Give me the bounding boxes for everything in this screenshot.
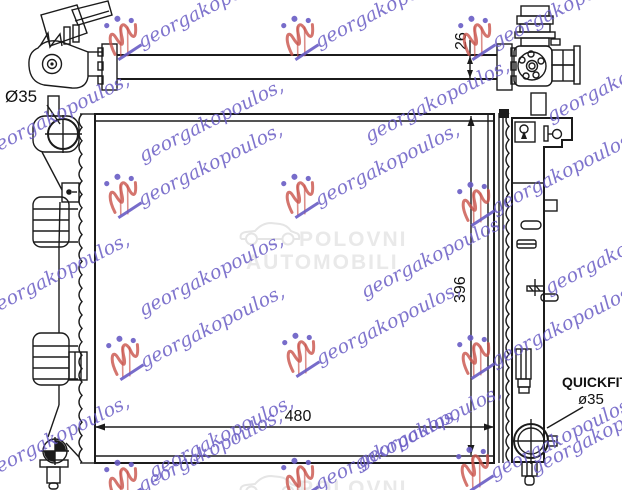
label-quickfit: QUICKFIT ø35 [547, 374, 622, 428]
bleed-stub [48, 96, 59, 116]
inlet-diameter-text: Ø35 [5, 87, 37, 106]
side-fins [506, 113, 509, 461]
dim-width-text: 480 [285, 408, 312, 425]
dim-pipe-text: 26 [453, 32, 470, 50]
dim-height-text: 396 [452, 276, 469, 303]
label-inlet: Ø35 [5, 87, 60, 124]
drain-plug [40, 437, 79, 489]
bleed-valve [527, 279, 558, 301]
dimension-width: 480 [95, 408, 494, 431]
bottom-plug [522, 462, 537, 485]
left-bracket-upper [33, 197, 78, 247]
radiator-technical-drawing: POLOVNI AUTOMOBILI POLOVNI [0, 0, 622, 490]
side-tank-outline [512, 118, 572, 462]
pipe-right-fitting [497, 6, 580, 90]
top-pipe [117, 55, 497, 79]
side-view [499, 93, 572, 485]
core-fins-left [79, 114, 82, 462]
quickfit-diameter-text: ø35 [578, 391, 604, 408]
lower-clip [516, 349, 531, 393]
radiator-diagram: 26 [0, 0, 622, 490]
side-pipe-stub [531, 93, 546, 115]
dimension-height: 396 [452, 116, 475, 455]
pipe-left-fitting [29, 1, 117, 90]
quickfit-label-text: QUICKFIT [562, 374, 622, 390]
